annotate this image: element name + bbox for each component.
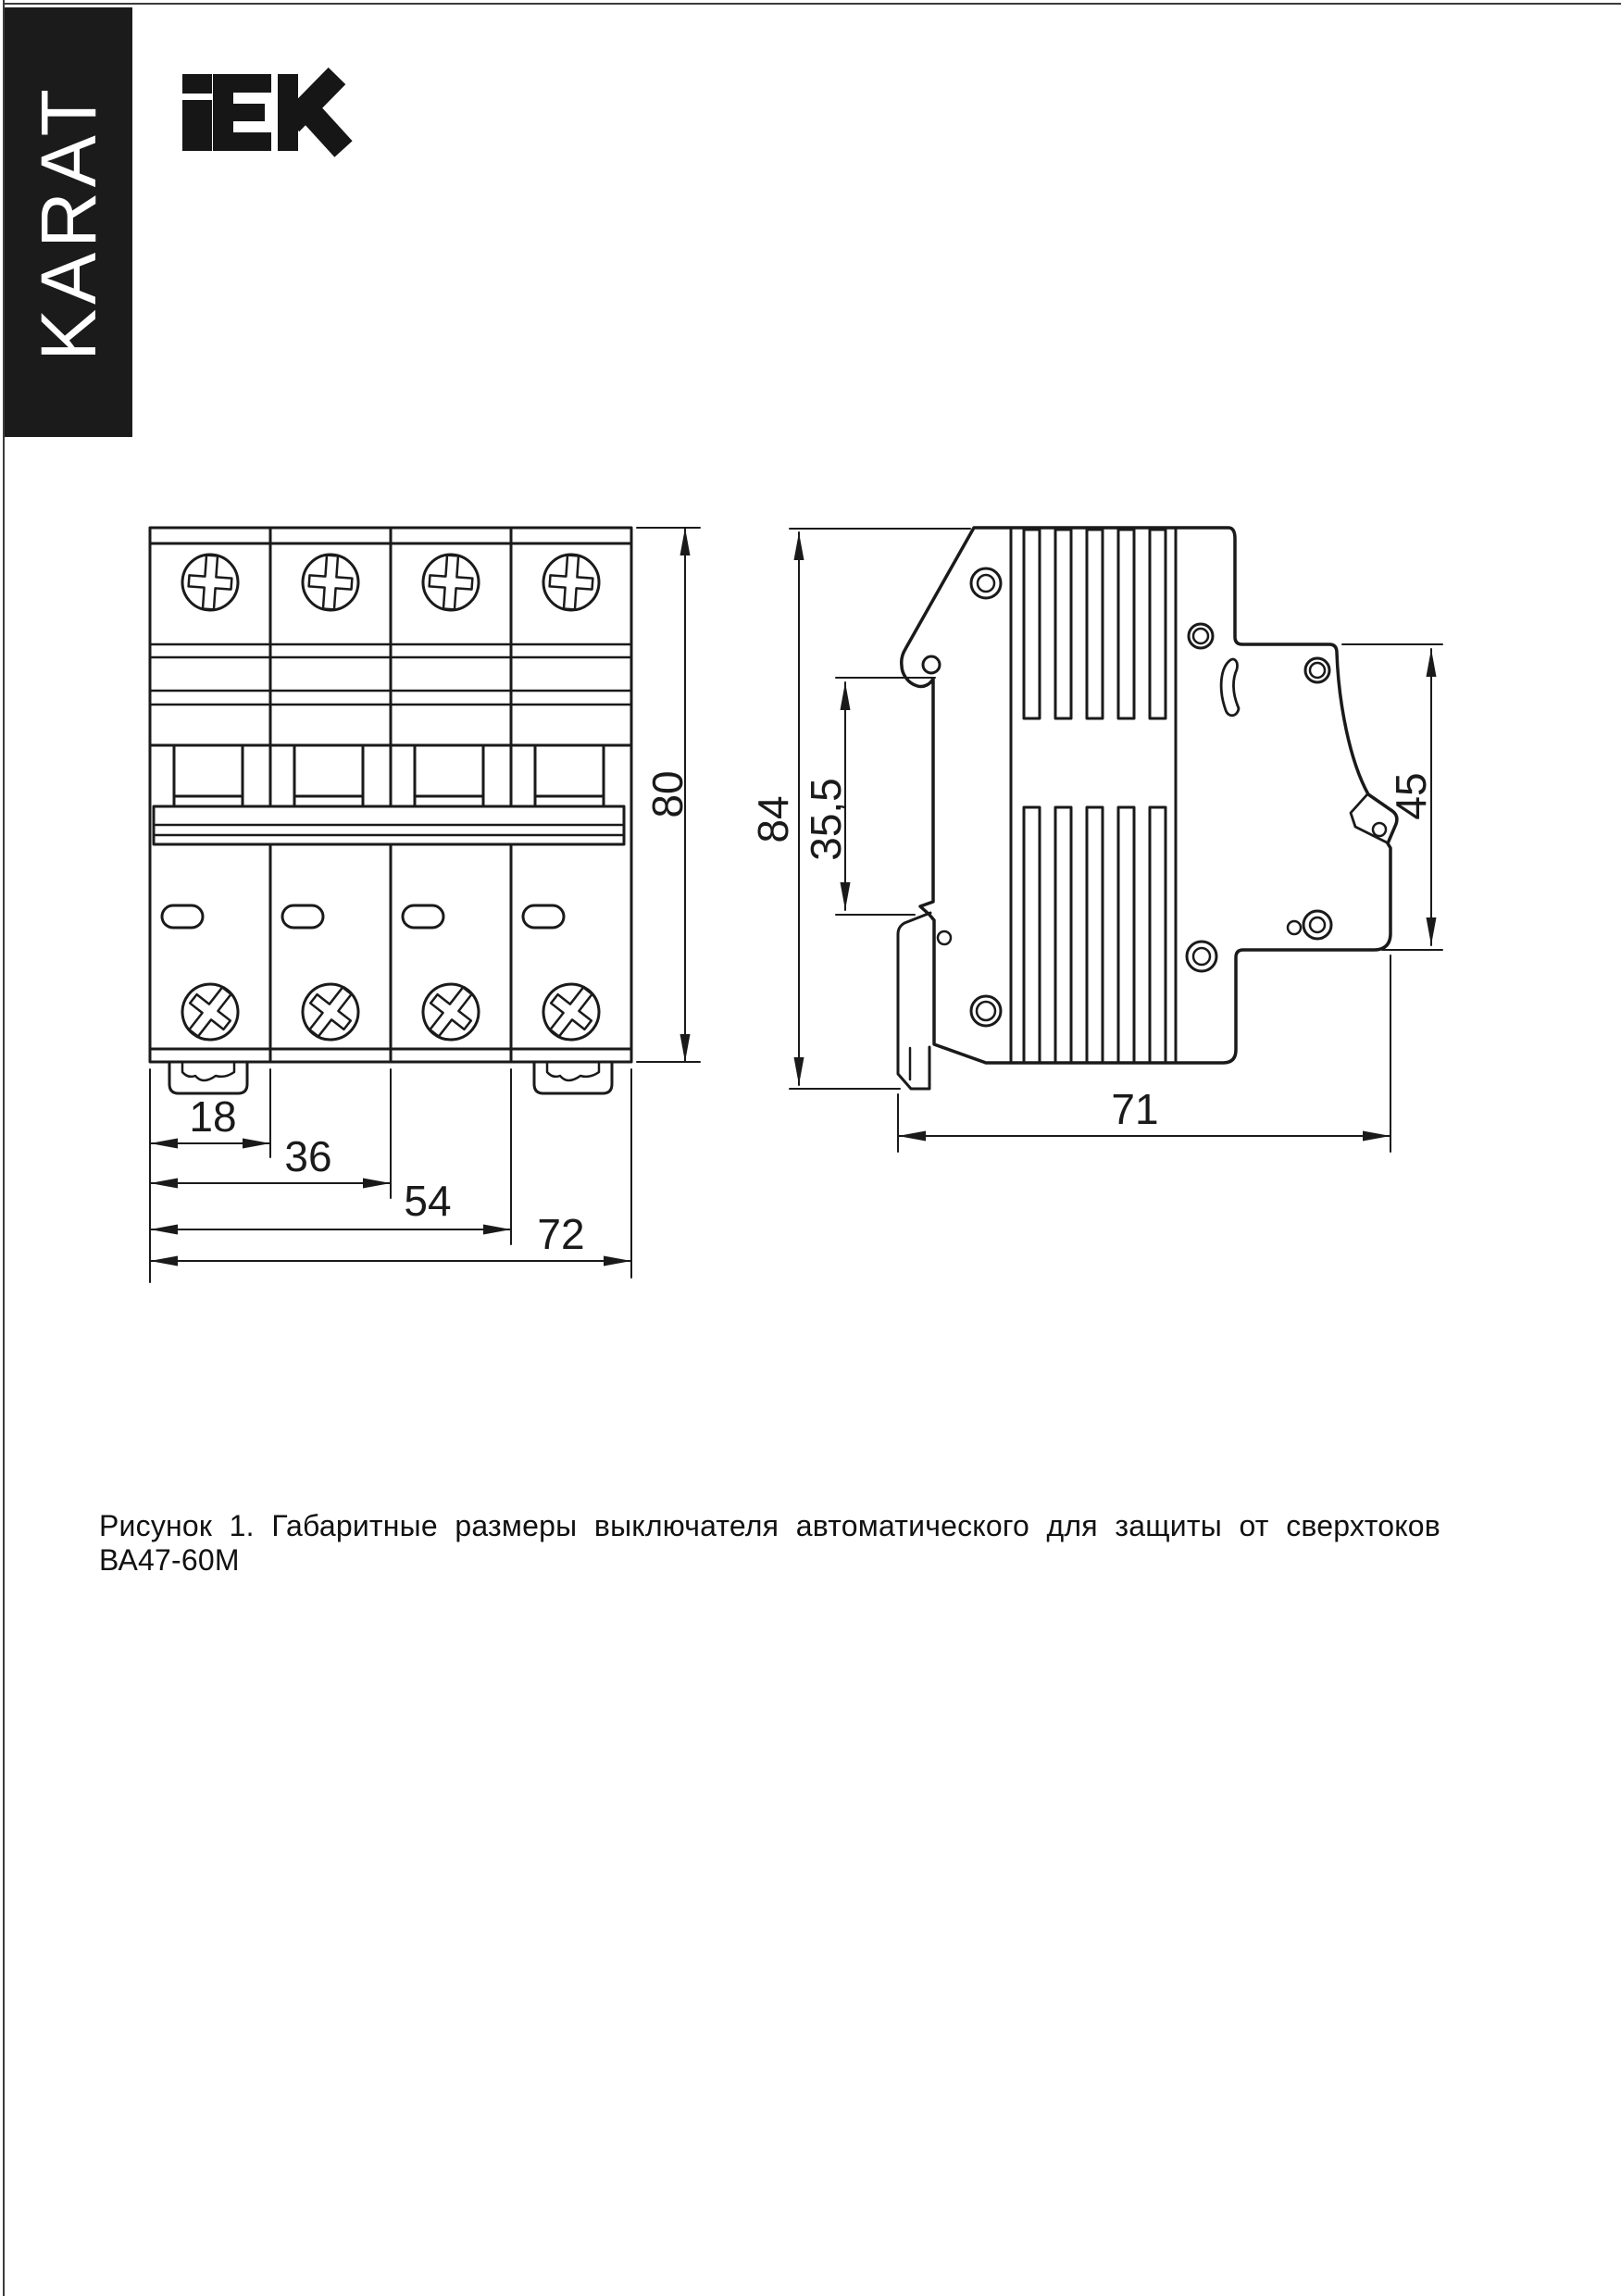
document-page: KARAT (0, 0, 1621, 2296)
dim-18-label: 18 (189, 1092, 236, 1141)
marking-windows (162, 905, 564, 928)
dim-71-label: 71 (1111, 1085, 1158, 1133)
dim-45-label: 45 (1387, 772, 1435, 819)
toggle-handles (174, 745, 604, 807)
curved-vent-slot (1221, 659, 1239, 716)
dimension-drawings: 18 36 54 72 80 (0, 0, 1621, 1389)
dim-35-5-label: 35,5 (802, 778, 850, 861)
dim-72-label: 72 (537, 1210, 584, 1258)
toggle-tie-bar (154, 806, 624, 844)
side-view-dimensions (790, 529, 1442, 1152)
dim-36-label: 36 (284, 1132, 331, 1180)
dim-54-label: 54 (404, 1177, 451, 1225)
din-clip-side (898, 913, 930, 1089)
dim-80-label: 80 (643, 770, 692, 817)
lever-pivot-pin (923, 656, 940, 673)
figure-caption: Рисунок 1. Габаритные размеры выключател… (99, 1509, 1440, 1578)
vent-slots-bottom (1024, 807, 1166, 1063)
front-view-drawing: 18 36 54 72 80 (150, 528, 700, 1282)
side-view-drawing: 84 35,5 45 71 (749, 528, 1442, 1152)
vent-slots-top (1024, 530, 1166, 718)
iek-logo-icon (182, 74, 343, 151)
dim-84-label: 84 (749, 795, 797, 842)
